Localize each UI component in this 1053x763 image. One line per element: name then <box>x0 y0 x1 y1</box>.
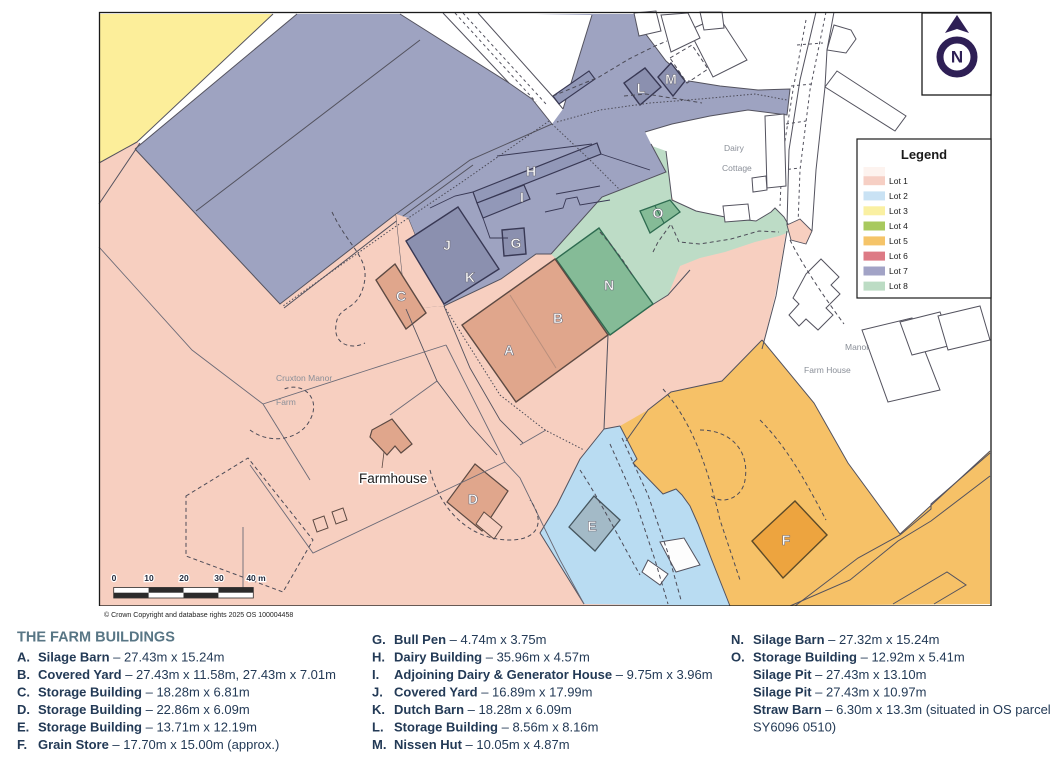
svg-text:Storage Building – 22.86m x 6.: Storage Building – 22.86m x 6.09m <box>38 702 250 717</box>
svg-text:20: 20 <box>179 573 189 583</box>
svg-text:40 m: 40 m <box>246 573 266 583</box>
svg-text:Covered Yard – 16.89m x 17.99m: Covered Yard – 16.89m x 17.99m <box>394 685 593 700</box>
svg-text:C.: C. <box>17 685 30 700</box>
svg-text:© Crown Copyright and database: © Crown Copyright and database rights 20… <box>104 611 293 619</box>
svg-text:Straw Barn – 6.30m x 13.3m (si: Straw Barn – 6.30m x 13.3m (situated in … <box>753 702 1051 717</box>
svg-text:Adjoining Dairy & Generator Ho: Adjoining Dairy & Generator House – 9.75… <box>394 667 713 682</box>
svg-text:H: H <box>526 163 536 179</box>
svg-text:N.: N. <box>731 632 744 647</box>
svg-text:Lot 6: Lot 6 <box>889 251 908 261</box>
svg-text:M.: M. <box>372 737 386 752</box>
svg-text:Silage Pit – 27.43m x 13.10m: Silage Pit – 27.43m x 13.10m <box>753 667 926 682</box>
svg-text:O: O <box>653 205 664 221</box>
svg-text:F.: F. <box>17 737 27 752</box>
svg-text:Storage Building – 18.28m x 6.: Storage Building – 18.28m x 6.81m <box>38 685 250 700</box>
svg-text:Covered Yard – 27.43m x 11.58m: Covered Yard – 27.43m x 11.58m, 27.43m x… <box>38 667 336 682</box>
svg-text:0: 0 <box>112 573 117 583</box>
svg-text:Lot 2: Lot 2 <box>889 191 908 201</box>
svg-text:Legend: Legend <box>901 147 947 162</box>
svg-text:Farm House: Farm House <box>804 365 851 375</box>
svg-text:Lot 4: Lot 4 <box>889 221 908 231</box>
svg-text:A: A <box>504 342 514 358</box>
svg-text:Manor: Manor <box>845 342 869 352</box>
svg-text:Storage Building – 13.71m x 12: Storage Building – 13.71m x 12.19m <box>38 720 257 735</box>
svg-text:F: F <box>782 532 791 548</box>
svg-text:Silage Barn – 27.32m x 15.24m: Silage Barn – 27.32m x 15.24m <box>753 632 939 647</box>
svg-text:B.: B. <box>17 667 30 682</box>
svg-text:Storage Building – 12.92m x 5.: Storage Building – 12.92m x 5.41m <box>753 650 965 665</box>
svg-text:Bull Pen – 4.74m x 3.75m: Bull Pen – 4.74m x 3.75m <box>394 632 546 647</box>
svg-text:Lot 8: Lot 8 <box>889 281 908 291</box>
svg-text:Grain Store – 17.70m x 15.00m: Grain Store – 17.70m x 15.00m (approx.) <box>38 737 279 752</box>
svg-text:I.: I. <box>372 667 379 682</box>
svg-text:G: G <box>511 235 522 251</box>
svg-text:Silage Barn – 27.43m x 15.24m: Silage Barn – 27.43m x 15.24m <box>38 650 224 665</box>
svg-text:C: C <box>396 288 406 304</box>
svg-text:L.: L. <box>372 720 384 735</box>
svg-text:L: L <box>637 80 646 96</box>
svg-text:G.: G. <box>372 632 386 647</box>
svg-text:H.: H. <box>372 650 385 665</box>
svg-text:K.: K. <box>372 702 385 717</box>
svg-text:SY6096 0510): SY6096 0510) <box>753 720 836 735</box>
svg-text:A.: A. <box>17 650 30 665</box>
svg-text:N: N <box>604 277 614 293</box>
svg-text:Lot 5: Lot 5 <box>889 236 908 246</box>
svg-text:Lot 3: Lot 3 <box>889 206 908 216</box>
svg-text:M: M <box>665 71 677 87</box>
svg-text:Lot 1: Lot 1 <box>889 176 908 186</box>
svg-text:30: 30 <box>214 573 224 583</box>
svg-text:K: K <box>465 269 475 285</box>
svg-text:Farmhouse: Farmhouse <box>359 471 427 486</box>
svg-text:10: 10 <box>144 573 154 583</box>
svg-text:B: B <box>553 310 563 326</box>
svg-text:N: N <box>951 48 963 67</box>
svg-text:I: I <box>520 189 524 205</box>
svg-text:E: E <box>587 518 596 534</box>
svg-text:Lot 7: Lot 7 <box>889 266 908 276</box>
svg-text:D.: D. <box>17 702 30 717</box>
svg-text:E.: E. <box>17 720 29 735</box>
svg-text:Dairy Building – 35.96m x 4.57: Dairy Building – 35.96m x 4.57m <box>394 650 590 665</box>
svg-text:J.: J. <box>372 685 383 700</box>
svg-text:Silage Pit – 27.43m x 10.97m: Silage Pit – 27.43m x 10.97m <box>753 685 926 700</box>
svg-text:Nissen Hut – 10.05m x 4.87m: Nissen Hut – 10.05m x 4.87m <box>394 737 570 752</box>
svg-text:D: D <box>468 491 478 507</box>
svg-text:Farm: Farm <box>276 397 296 407</box>
svg-text:J: J <box>443 237 451 253</box>
svg-text:Cruxton Manor: Cruxton Manor <box>276 373 332 383</box>
svg-text:THE FARM BUILDINGS: THE FARM BUILDINGS <box>17 630 175 646</box>
svg-text:Dutch Barn – 18.28m x 6.09m: Dutch Barn – 18.28m x 6.09m <box>394 702 572 717</box>
svg-text:O.: O. <box>731 650 745 665</box>
svg-text:Dairy: Dairy <box>724 143 745 153</box>
svg-text:Cottage: Cottage <box>722 163 752 173</box>
svg-text:Storage Building – 8.56m x 8.1: Storage Building – 8.56m x 8.16m <box>394 720 598 735</box>
